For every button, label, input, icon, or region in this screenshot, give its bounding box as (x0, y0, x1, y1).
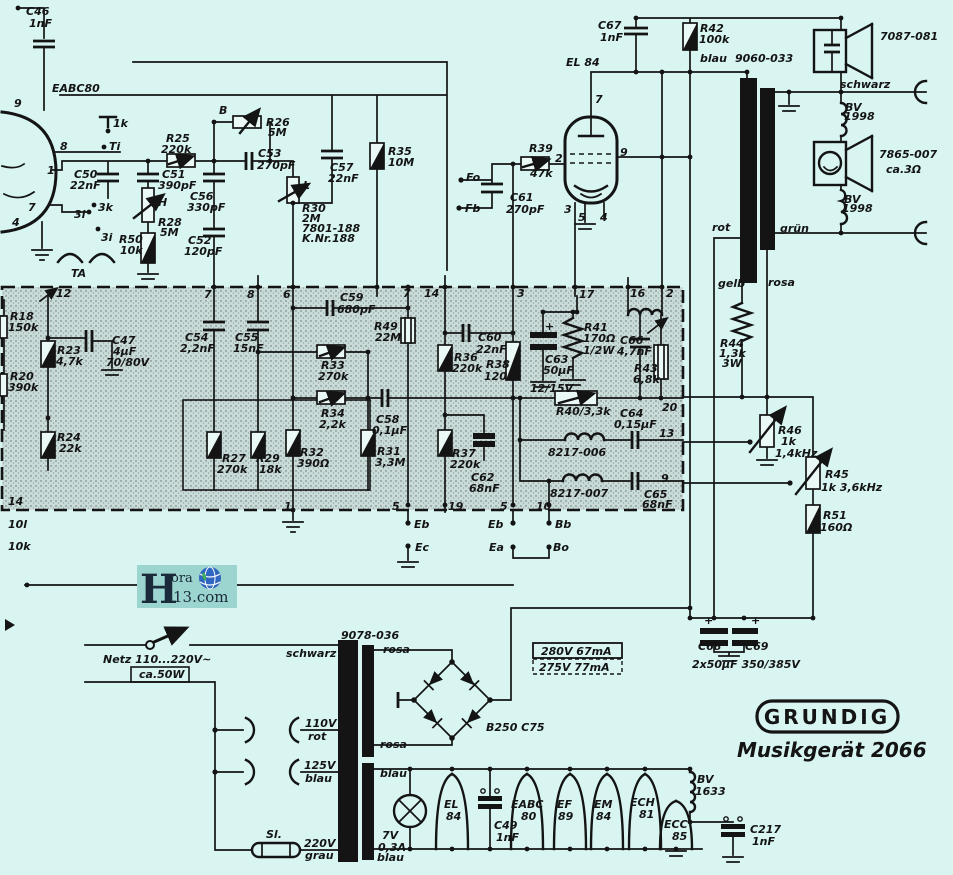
label-1k-3-6khz: 1k 3,6kHz (821, 481, 883, 494)
resistor-r35 (370, 143, 384, 169)
label-22nf: 22nF (70, 179, 101, 192)
label-220k: 220k (161, 143, 192, 156)
resistor-r36 (438, 345, 452, 371)
label-eb: Eb (488, 518, 504, 531)
label-rot: rot (308, 730, 327, 743)
label-50-f: 50µF (543, 364, 574, 377)
label-fo: Fo (466, 171, 481, 184)
label-eb: Eb (414, 518, 430, 531)
label-4: 4 (11, 216, 20, 229)
resistor-r23 (41, 341, 55, 367)
label-150k: 150k (8, 321, 39, 334)
label-270pf: 270pF (506, 203, 545, 216)
label-ea: Ea (489, 541, 504, 554)
label-3w: 3W (722, 357, 743, 370)
label-68nf: 68nF (469, 482, 500, 495)
label--: + (751, 614, 760, 627)
label-680pf: 680pF (337, 303, 376, 316)
label-rosa: rosa (768, 276, 795, 289)
label-8: 8 (247, 288, 255, 301)
label-eabc80: EABC80 (52, 82, 100, 95)
label-1-4khz: 1,4kHz (775, 447, 818, 460)
label-4-7nf: 4,7nF (616, 345, 652, 358)
label-120k: 120k (484, 370, 515, 383)
label-2: 2 (666, 287, 674, 300)
label-1nf: 1nF (752, 835, 775, 848)
label-3: 3 (517, 287, 525, 300)
resistor-r24 (41, 432, 55, 458)
label-80: 80 (521, 810, 537, 823)
label-5: 5 (392, 500, 400, 513)
label-blau: blau (700, 52, 727, 65)
label-19: 19 (448, 500, 464, 513)
label-4: 4 (599, 211, 608, 224)
label-13: 13 (659, 427, 675, 440)
resistor-r34 (317, 391, 345, 404)
resistor-r50 (141, 233, 155, 263)
label-ca-3-: ca.3Ω (886, 163, 921, 176)
label-schwarz: schwarz (840, 78, 891, 91)
label-9: 9 (14, 97, 22, 110)
watermark-line2: 13.com (173, 588, 229, 606)
label-1-2w: 1/2W (583, 344, 615, 357)
label-220k: 220k (450, 458, 481, 471)
label-2x50-f-350-385v: 2x50µF 350/385V (692, 658, 801, 671)
label-7087-081: 7087-081 (880, 30, 938, 43)
label-6: 6 (283, 288, 291, 301)
label-gelb: gelb (718, 277, 745, 290)
label-10m: 10M (388, 156, 414, 169)
label-ca-50w: ca.50W (139, 668, 185, 681)
resistor-r49 (401, 318, 415, 343)
label-gr-n: grün (780, 222, 809, 235)
label-84: 84 (596, 810, 611, 823)
label-1nf: 1nF (496, 831, 519, 844)
label-b: B (219, 104, 227, 117)
label-2-2k: 2,2k (319, 418, 346, 431)
label-10l: 10l (8, 518, 27, 531)
resistor-r32 (286, 430, 300, 456)
label-8217-007: 8217-007 (550, 487, 608, 500)
label-3i: 3i (101, 231, 113, 244)
resistor-r18 (0, 316, 7, 338)
label-100k: 100k (699, 33, 730, 46)
label-22nf: 22nF (328, 172, 359, 185)
label-89: 89 (558, 810, 574, 823)
label-6-8k: 6,8k (633, 373, 660, 386)
label-bb: Bb (555, 518, 571, 531)
grundig-logo: GRUNDIG (757, 701, 898, 732)
resistor-r42 (683, 23, 697, 50)
label-14: 14 (424, 287, 439, 300)
label-bo: Bo (553, 541, 569, 554)
label-10k: 10k (120, 244, 143, 257)
label-47k: 47k (529, 167, 553, 180)
label-c69: C69 (745, 640, 769, 653)
label-c68: C68 (698, 640, 722, 653)
label-1998: 1998 (842, 202, 873, 215)
resistor-r37 (438, 430, 452, 456)
label-1nf: 1nF (29, 17, 52, 30)
label-160-: 160Ω (820, 521, 852, 534)
label-18k: 18k (259, 463, 282, 476)
label-125v: 125V (304, 759, 337, 772)
label-fb: Fb (465, 202, 481, 215)
label-390k: 390k (8, 381, 39, 394)
label-0-15-f: 0,15µF (614, 418, 657, 431)
label-r39: R39 (529, 142, 553, 155)
label-110v: 110V (305, 717, 338, 730)
label-ta: TA (71, 267, 86, 280)
label-7: 7 (28, 201, 36, 214)
label-7: 7 (204, 288, 212, 301)
label-blau: blau (380, 767, 407, 780)
label-rosa: rosa (380, 738, 407, 751)
label-h: H (158, 196, 167, 209)
label--: + (545, 320, 554, 333)
label-blau: blau (305, 772, 332, 785)
resistor-r27 (207, 432, 221, 458)
label-12: 12 (56, 287, 72, 300)
label-k-nr-188: K.Nr.188 (302, 232, 355, 245)
label-10k: 10k (8, 540, 31, 553)
label-el-84: EL 84 (566, 56, 600, 69)
model-text: Musikgerät 2066 (737, 738, 927, 762)
label-9078-036: 9078-036 (341, 629, 399, 642)
label-220k: 220k (452, 362, 483, 375)
label-0-3a: 0,3A (378, 841, 406, 854)
label-7: 7 (403, 287, 411, 300)
label-1: 1 (47, 164, 55, 177)
label-rot: rot (712, 221, 731, 234)
label-7: 7 (595, 93, 603, 106)
label-r45: R45 (825, 468, 849, 481)
label-14: 14 (8, 495, 23, 508)
label-2-2nf: 2,2nF (180, 342, 215, 355)
label-22m: 22M (375, 331, 401, 344)
label-grau: grau (305, 849, 334, 862)
label-17: 17 (579, 288, 595, 301)
label-1nf: 1nF (600, 31, 623, 44)
label-280v-67ma: 280V 67mA (541, 645, 612, 658)
label-20: 20 (662, 401, 678, 414)
label-0-1-f: 0,1µF (372, 424, 408, 437)
label-rosa: rosa (383, 643, 410, 656)
label-7865-007: 7865-007 (879, 148, 937, 161)
label-15nf: 15nF (233, 342, 264, 355)
watermark-line1: ora (171, 571, 193, 586)
power-transformer-9078-036 (338, 640, 374, 862)
label-sl-: Sl. (266, 828, 282, 841)
label-270k: 270k (318, 370, 349, 383)
label-1998: 1998 (844, 110, 875, 123)
label-12-15v: 12/15V (530, 382, 575, 395)
label-8: 8 (60, 140, 68, 153)
label-1633: 1633 (695, 785, 726, 798)
label-5m: 5M (160, 226, 179, 239)
label-10: 10 (536, 500, 552, 513)
label-16: 16 (630, 287, 646, 300)
label-3k: 3k (98, 201, 114, 214)
label--: + (704, 614, 713, 627)
label-l: L (303, 179, 310, 192)
label-84: 84 (446, 810, 461, 823)
label-9060-033: 9060-033 (735, 52, 793, 65)
label-schwarz: schwarz (286, 647, 337, 660)
label-70-80v: 70/80V (106, 356, 151, 369)
label-5: 5 (500, 500, 508, 513)
label-390-: 390Ω (297, 457, 329, 470)
label-1k: 1k (113, 117, 129, 130)
label-22nf: 22nF (476, 343, 507, 356)
label-3l: 3l (74, 208, 86, 221)
label-120pf: 120pF (184, 245, 223, 258)
label-netz-110-220v-: Netz 110...220V~ (103, 653, 211, 666)
label-270k: 270k (217, 463, 248, 476)
label-3-3m: 3,3M (375, 456, 405, 469)
brand-text: GRUNDIG (764, 705, 890, 729)
label-1: 1 (284, 500, 292, 513)
label-5m: 5M (268, 126, 287, 139)
label-275v-77ma: 275V 77mA (539, 661, 610, 674)
label-ec: Ec (415, 541, 430, 554)
label-8217-006: 8217-006 (548, 446, 606, 459)
label-9: 9 (661, 472, 669, 485)
label-ti: Ti (109, 140, 121, 153)
resistor-r20 (0, 374, 7, 396)
label-330pf: 330pF (187, 201, 226, 214)
label-270pf: 270pF (257, 159, 296, 172)
label-22k: 22k (59, 442, 82, 455)
label-2: 2 (555, 152, 563, 165)
watermark: H ora 13.com (137, 565, 237, 613)
resistor-r33 (317, 345, 345, 358)
label-9: 9 (620, 146, 628, 159)
label-68nf: 68nF (642, 498, 673, 511)
label-b250-c75: B250 C75 (486, 721, 545, 734)
globe-icon (199, 567, 221, 589)
schematic-canvas: GRUNDIG Musikgerät 2066 H ora 13.com C46… (0, 0, 953, 875)
label-4-7k: 4,7k (55, 355, 83, 368)
label-3: 3 (564, 203, 572, 216)
label-r40-3-3k: R40/3,3k (556, 405, 611, 418)
label-85: 85 (672, 830, 688, 843)
label-81: 81 (639, 808, 654, 821)
label-5: 5 (578, 211, 586, 224)
resistor-r51 (806, 505, 820, 533)
